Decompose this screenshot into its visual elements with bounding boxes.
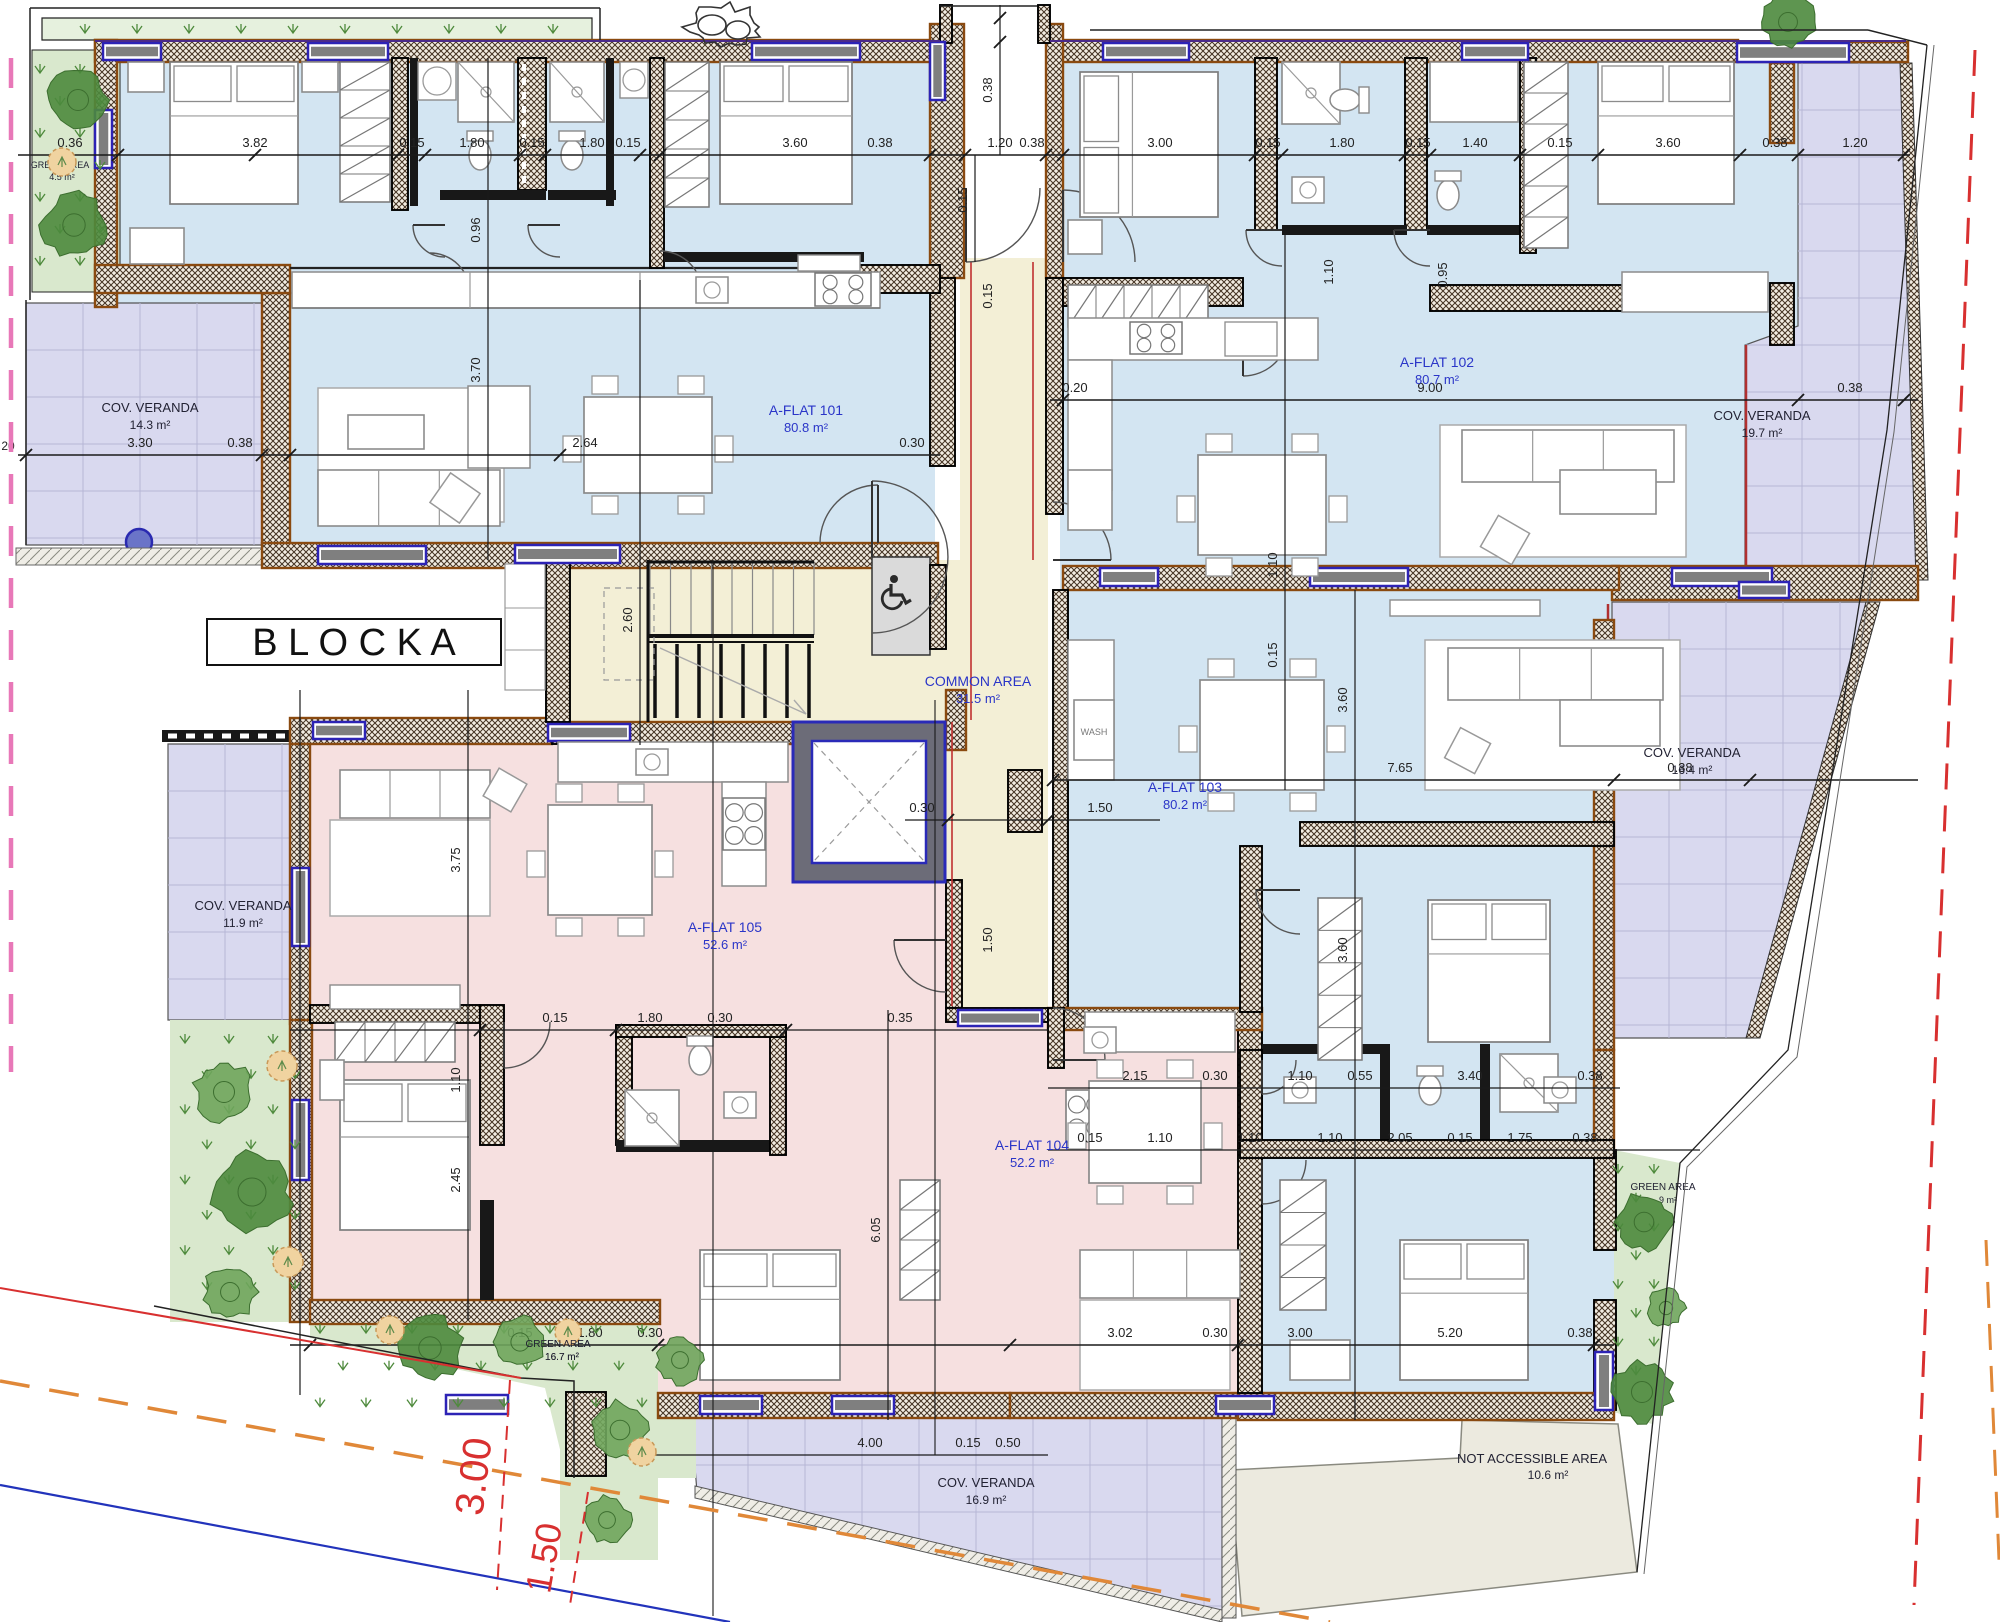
svg-text:11.9 m²: 11.9 m²	[223, 916, 263, 930]
svg-text:B L O C K A: B L O C K A	[252, 622, 456, 664]
svg-text:3.75: 3.75	[448, 847, 463, 872]
svg-text:0.96: 0.96	[468, 217, 483, 242]
svg-text:0.55: 0.55	[1347, 1068, 1372, 1083]
svg-text:4.00: 4.00	[857, 1435, 882, 1450]
svg-text:1.80: 1.80	[459, 135, 484, 150]
svg-text:10.6 m²: 10.6 m²	[1528, 1468, 1569, 1482]
svg-text:0.15: 0.15	[955, 1435, 980, 1450]
svg-text:0.15: 0.15	[1077, 1130, 1102, 1145]
svg-text:0.15: 0.15	[1265, 642, 1280, 667]
svg-text:52.6 m²: 52.6 m²	[703, 937, 748, 952]
svg-text:0.38: 0.38	[1572, 1130, 1597, 1145]
svg-text:1.80: 1.80	[637, 1010, 662, 1025]
svg-text:2.45: 2.45	[448, 1167, 463, 1192]
svg-text:80.2 m²: 80.2 m²	[1163, 797, 1208, 812]
svg-text:52.2 m²: 52.2 m²	[1010, 1155, 1055, 1170]
svg-text:0.38: 0.38	[227, 435, 252, 450]
svg-text:A-FLAT 104: A-FLAT 104	[995, 1137, 1069, 1153]
svg-text:0.35: 0.35	[887, 1010, 912, 1025]
svg-text:3.00: 3.00	[448, 1435, 501, 1518]
svg-text:3.82: 3.82	[242, 135, 267, 150]
svg-text:2.60: 2.60	[620, 607, 635, 632]
svg-text:1.10: 1.10	[1237, 1130, 1262, 1145]
svg-text:0.15: 0.15	[615, 135, 640, 150]
svg-text:0.30: 0.30	[899, 435, 924, 450]
svg-text:0.30: 0.30	[707, 1010, 732, 1025]
svg-text:0.20: 0.20	[1062, 380, 1087, 395]
svg-text:A-FLAT 102: A-FLAT 102	[1400, 354, 1474, 370]
svg-text:16.4 m²: 16.4 m²	[1672, 763, 1713, 777]
svg-text:0.38: 0.38	[1762, 135, 1787, 150]
svg-text:1.10: 1.10	[448, 1067, 463, 1092]
svg-text:80.8 m²: 80.8 m²	[784, 420, 829, 435]
svg-text:1.10: 1.10	[1147, 1130, 1172, 1145]
svg-text:COV. VERANDA: COV. VERANDA	[101, 400, 198, 415]
svg-text:0.15: 0.15	[399, 135, 424, 150]
svg-text:0.30: 0.30	[1202, 1068, 1227, 1083]
svg-text:3.60: 3.60	[1335, 937, 1350, 962]
svg-text:0.15: 0.15	[542, 1010, 567, 1025]
svg-text:1.40: 1.40	[1462, 135, 1487, 150]
svg-text:COV. VERANDA: COV. VERANDA	[1713, 408, 1810, 423]
svg-text:2.64: 2.64	[572, 435, 597, 450]
svg-text:1.50: 1.50	[1087, 800, 1112, 815]
svg-text:0.15: 0.15	[1547, 135, 1572, 150]
svg-text:COMMON AREA: COMMON AREA	[925, 673, 1032, 689]
svg-text:1.10: 1.10	[1265, 552, 1280, 577]
svg-text:0.15: 0.15	[1405, 135, 1430, 150]
svg-text:1.10: 1.10	[1317, 1130, 1342, 1145]
svg-text:A-FLAT 101: A-FLAT 101	[769, 402, 843, 418]
svg-text:3.00: 3.00	[1147, 135, 1172, 150]
svg-text:GREEN AREA: GREEN AREA	[525, 1339, 590, 1350]
svg-text:A-FLAT 103: A-FLAT 103	[1148, 779, 1222, 795]
svg-text:1.80: 1.80	[579, 135, 604, 150]
svg-text:0.38: 0.38	[867, 135, 892, 150]
svg-text:7.65: 7.65	[1387, 760, 1412, 775]
svg-text:3.60: 3.60	[1655, 135, 1680, 150]
svg-text:1.10: 1.10	[1321, 259, 1336, 284]
svg-text:0.15: 0.15	[980, 283, 995, 308]
svg-text:NOT ACCESSIBLE AREA: NOT ACCESSIBLE AREA	[1457, 1451, 1607, 1466]
svg-text:1.20: 1.20	[1842, 135, 1867, 150]
svg-text:16.7 m²: 16.7 m²	[545, 1352, 580, 1363]
svg-text:31.5 m²: 31.5 m²	[956, 691, 1001, 706]
svg-text:5.20: 5.20	[1437, 1325, 1462, 1340]
svg-text:2.05: 2.05	[1387, 1130, 1412, 1145]
svg-text:0.95: 0.95	[1435, 262, 1450, 287]
svg-text:WASH: WASH	[1081, 727, 1108, 737]
svg-text:0.15: 0.15	[519, 135, 544, 150]
svg-text:19.7 m²: 19.7 m²	[1742, 426, 1783, 440]
svg-text:0.15: 0.15	[1447, 1130, 1472, 1145]
svg-text:0.38: 0.38	[1837, 380, 1862, 395]
svg-text:14.3 m²: 14.3 m²	[130, 418, 171, 432]
svg-text:1.10: 1.10	[1287, 1068, 1312, 1083]
svg-text:GREEN AREA: GREEN AREA	[1630, 1182, 1695, 1193]
svg-text:2.15: 2.15	[1122, 1068, 1147, 1083]
svg-text:COV. VERANDA: COV. VERANDA	[194, 898, 291, 913]
svg-text:3.60: 3.60	[1335, 687, 1350, 712]
svg-text:80.7 m²: 80.7 m²	[1415, 372, 1460, 387]
svg-text:6.05: 6.05	[868, 1217, 883, 1242]
svg-text:16.9 m²: 16.9 m²	[966, 1493, 1007, 1507]
svg-text:1.75: 1.75	[1507, 1130, 1532, 1145]
svg-text:1.50: 1.50	[980, 927, 995, 952]
svg-text:0.30: 0.30	[909, 800, 934, 815]
svg-text:0.50: 0.50	[995, 1435, 1020, 1450]
svg-text:3.02: 3.02	[1107, 1325, 1132, 1340]
svg-text:0.38: 0.38	[1019, 135, 1044, 150]
svg-text:3.40: 3.40	[1457, 1068, 1482, 1083]
svg-text:COV. VERANDA: COV. VERANDA	[937, 1475, 1034, 1490]
svg-text:3.30: 3.30	[127, 435, 152, 450]
svg-text:3.00: 3.00	[1287, 1325, 1312, 1340]
svg-text:COV. VERANDA: COV. VERANDA	[1643, 745, 1740, 760]
svg-text:0.38: 0.38	[1577, 1068, 1602, 1083]
svg-text:0.38: 0.38	[1567, 1325, 1592, 1340]
svg-text:0.15: 0.15	[955, 187, 970, 212]
svg-text:1.80: 1.80	[1329, 135, 1354, 150]
svg-text:A-FLAT 105: A-FLAT 105	[688, 919, 762, 935]
svg-text:0.30: 0.30	[1202, 1325, 1227, 1340]
svg-text:0.38: 0.38	[980, 77, 995, 102]
svg-text:0.15: 0.15	[1255, 135, 1280, 150]
svg-text:3.60: 3.60	[782, 135, 807, 150]
svg-text:3.70: 3.70	[468, 357, 483, 382]
